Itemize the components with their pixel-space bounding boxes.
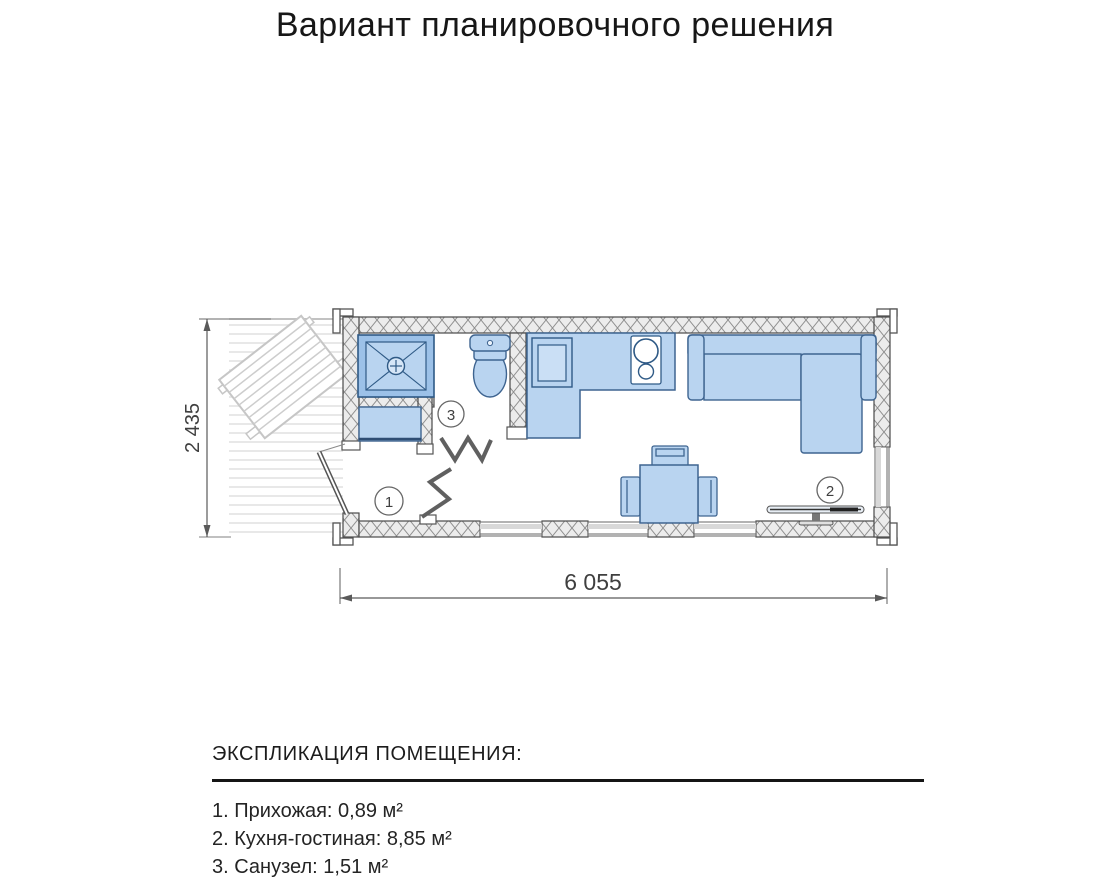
svg-text:2: 2 — [826, 483, 834, 500]
room-label-bathroom: 3 — [438, 401, 464, 427]
kitchen-sink — [532, 338, 572, 387]
window — [875, 447, 889, 507]
dining-chair — [621, 477, 640, 516]
legend-divider — [212, 779, 924, 782]
room-label-kitchen-living: 2 — [817, 477, 843, 503]
dining-chair — [698, 477, 717, 516]
toilet — [470, 335, 510, 397]
legend-heading: ЭКСПЛИКАЦИЯ ПОМЕЩЕНИЯ: — [212, 743, 924, 766]
legend-items: 1. Прихожая: 0,89 м² 2. Кухня-гостиная: … — [212, 797, 924, 881]
svg-text:1: 1 — [385, 494, 393, 511]
page: { "title": "Вариант планировочного решен… — [0, 0, 1110, 879]
washing-machine — [359, 407, 421, 441]
window — [480, 522, 542, 536]
sofa — [688, 335, 876, 453]
folding-door-bathroom — [441, 438, 491, 460]
page-title: Вариант планировочного решения — [0, 6, 1110, 45]
dimension-width-label: 6 055 — [564, 569, 622, 595]
dimension-width: 6 055 — [340, 568, 887, 604]
room-label-hall: 1 — [375, 487, 403, 515]
svg-text:3: 3 — [447, 407, 455, 424]
floor-plan: 1 2 3 2 435 6 055 — [180, 290, 920, 610]
shower-tray — [358, 335, 434, 397]
dining-chair — [652, 446, 688, 467]
folding-door-hall — [422, 469, 451, 517]
window — [588, 522, 648, 536]
stove — [631, 336, 661, 384]
legend-item: 1. Прихожая: 0,89 м² — [212, 797, 924, 825]
window — [694, 522, 756, 536]
legend-item: 3. Санузел: 1,51 м² — [212, 853, 924, 881]
legend: ЭКСПЛИКАЦИЯ ПОМЕЩЕНИЯ: 1. Прихожая: 0,89… — [212, 743, 924, 881]
dining-table — [640, 465, 698, 523]
dimension-height-label: 2 435 — [182, 403, 204, 453]
legend-item: 2. Кухня-гостиная: 8,85 м² — [212, 825, 924, 853]
